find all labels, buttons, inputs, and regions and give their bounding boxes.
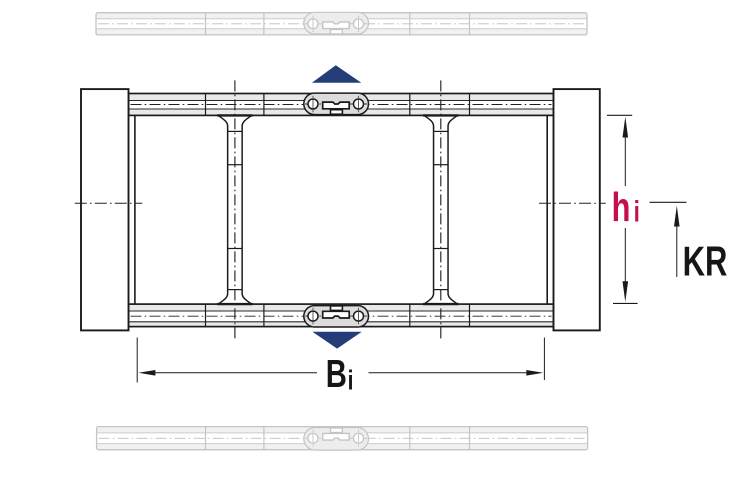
svg-text:B: B	[326, 353, 347, 396]
svg-text:i: i	[348, 366, 354, 397]
svg-text:i: i	[634, 194, 640, 228]
svg-text:KR: KR	[683, 238, 728, 284]
svg-text:h: h	[612, 184, 631, 230]
